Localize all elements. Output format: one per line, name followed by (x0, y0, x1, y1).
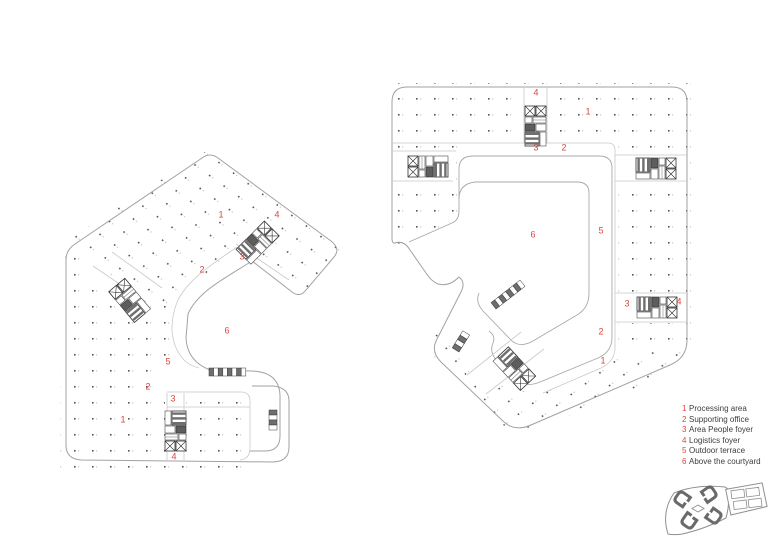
legend-item: 5Outdoor terrace (682, 446, 761, 457)
legend-item-label: Logistics foyer (689, 436, 740, 447)
legend-item-number: 6 (682, 457, 689, 468)
legend-item-number: 5 (682, 446, 689, 457)
legend: 1Processing area2Supporting office3Area … (682, 404, 761, 468)
key-plan-outline (666, 486, 729, 534)
legend-item-number: 4 (682, 436, 689, 447)
legend-item-label: Area People foyer (689, 425, 753, 436)
legend-item-number: 1 (682, 404, 689, 415)
legend-item-label: Above the courtyard (689, 457, 761, 468)
legend-item: 3Area People foyer (682, 425, 761, 436)
key-plan-annex (725, 483, 767, 516)
key-plan-icon (648, 478, 778, 552)
corridor-mask (614, 292, 690, 323)
legend-item: 1Processing area (682, 404, 761, 415)
drawing-canvas: 14326523144132653421 1Processing area2Su… (0, 0, 780, 552)
legend-item-label: Processing area (689, 404, 747, 415)
floor-plan-left-group (60, 152, 344, 470)
terrace-mask (250, 392, 302, 470)
legend-item-label: Supporting office (689, 415, 749, 426)
floor-plan-right-group (388, 83, 691, 434)
legend-item: 2Supporting office (682, 415, 761, 426)
legend-item: 4Logistics foyer (682, 436, 761, 447)
louver-bar (209, 368, 246, 376)
floor-plans-drawing (0, 0, 780, 552)
legend-item-number: 2 (682, 415, 689, 426)
legend-item-label: Outdoor terrace (689, 446, 745, 457)
louver-bar (269, 410, 277, 430)
legend-item-number: 3 (682, 425, 689, 436)
legend-item: 6Above the courtyard (682, 457, 761, 468)
